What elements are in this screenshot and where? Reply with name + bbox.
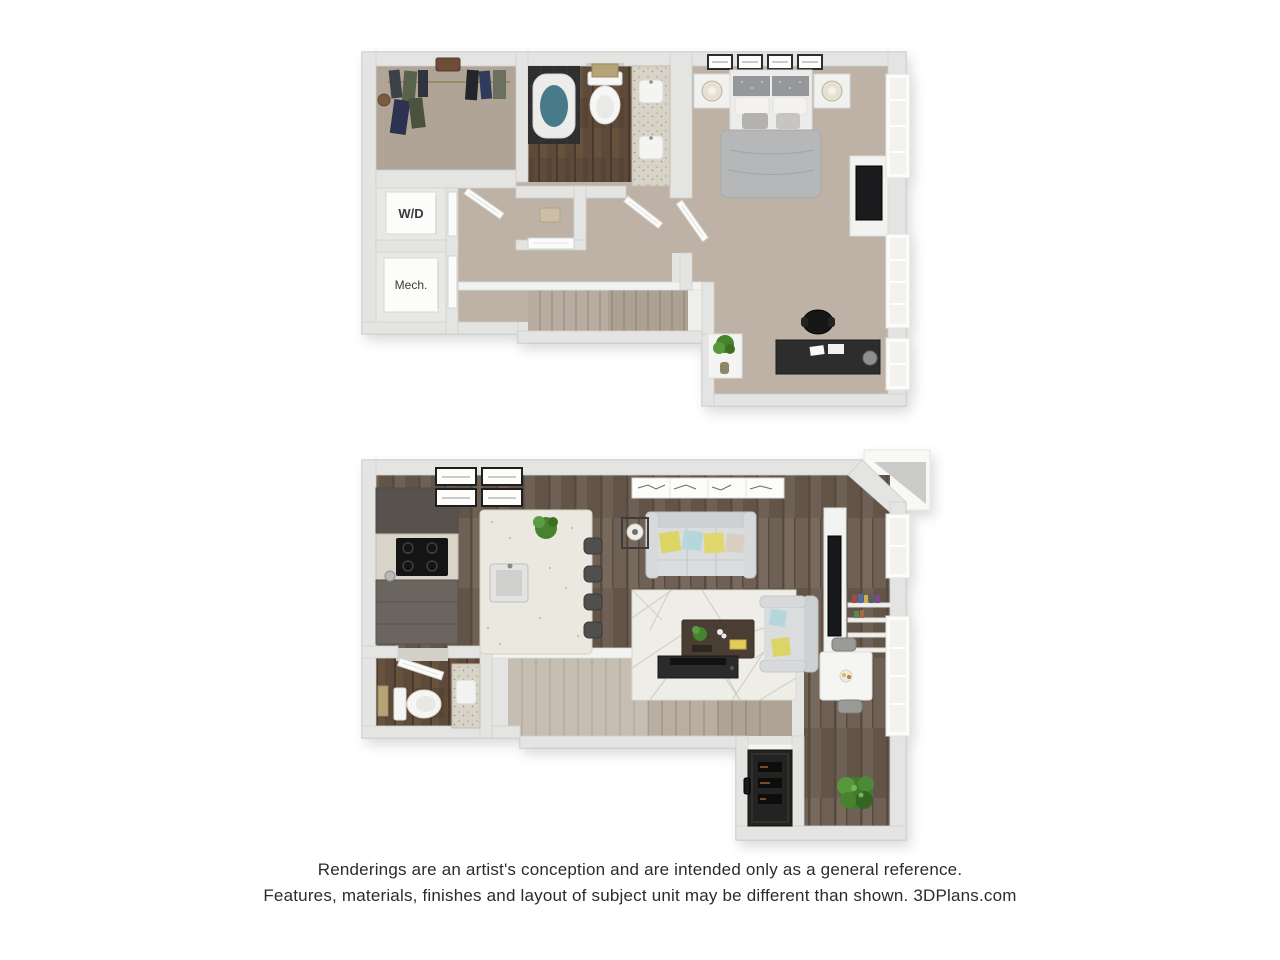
lower-windows [886, 514, 910, 736]
duvet [721, 130, 821, 198]
nightstand-right [814, 74, 850, 108]
tub-water [540, 85, 568, 127]
tv-wall-panel [824, 508, 846, 653]
disclaimer-text: Renderings are an artist's conception an… [0, 857, 1280, 909]
kitchen-cabinets [376, 488, 458, 644]
stair-landing [688, 290, 702, 332]
tv [856, 166, 882, 220]
wall-art [632, 478, 784, 498]
towel-rack [586, 63, 624, 77]
bed [721, 70, 821, 198]
stair-ledge-plant [708, 334, 742, 378]
armchair [760, 596, 818, 672]
linen-basket [540, 208, 560, 222]
lower-floor-plan [340, 448, 940, 848]
ledge-vase [720, 362, 729, 374]
upper-floor-plan: W/D Mech. [340, 38, 940, 438]
media-console [658, 656, 738, 678]
mech-closet-door [448, 256, 457, 308]
coffee-table-book [730, 640, 746, 649]
closet-bag [436, 58, 460, 71]
powder-towel [378, 686, 388, 716]
bathroom-vanity [632, 66, 670, 186]
disclaimer-line-1: Renderings are an artist's conception an… [0, 857, 1280, 883]
console-tv [670, 658, 726, 665]
entry-closet [744, 744, 792, 826]
kitchen-island [480, 510, 602, 654]
toilet [588, 72, 622, 124]
dresser-tv [850, 156, 888, 236]
wd-closet-door [448, 192, 457, 236]
washer-dryer-label: W/D [398, 206, 423, 221]
entry-device [744, 778, 750, 794]
sofa [646, 512, 756, 578]
coffee-table [682, 620, 754, 658]
mechanical-label: Mech. [395, 278, 428, 292]
desk-lamp [863, 351, 877, 365]
closet-hat [378, 94, 390, 106]
cooktop [396, 538, 448, 576]
dining-chair-bottom [838, 700, 862, 713]
kitchen-vase [385, 571, 395, 581]
floor-plant [837, 776, 874, 809]
stair-railing [458, 282, 702, 290]
wall-tv [828, 536, 841, 636]
powder-toilet [394, 688, 441, 720]
dining-chair-top [832, 638, 856, 651]
shower-tub [528, 66, 580, 144]
nightstand-left [694, 74, 730, 108]
floor-plan-page: { "disclaimer": { "line1": "Renderings a… [0, 0, 1280, 960]
powder-vanity [452, 664, 480, 728]
disclaimer-line-2: Features, materials, finishes and layout… [0, 883, 1280, 909]
